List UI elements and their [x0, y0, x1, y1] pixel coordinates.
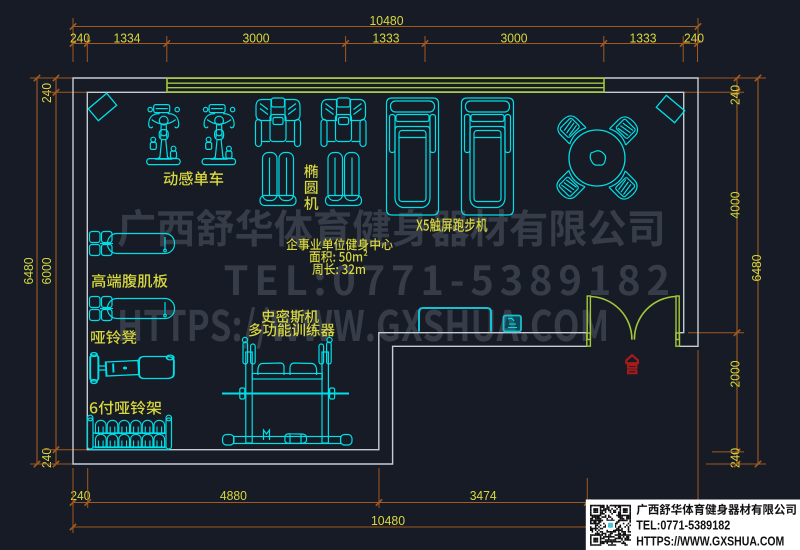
svg-text:1334: 1334: [114, 31, 141, 46]
svg-text:TEL:0771-5389182: TEL:0771-5389182: [636, 518, 730, 533]
svg-text:240: 240: [728, 448, 743, 468]
svg-text:240: 240: [39, 448, 54, 468]
svg-text:4880: 4880: [220, 488, 247, 503]
svg-text:1333: 1333: [373, 31, 400, 46]
svg-text:10480: 10480: [371, 513, 405, 528]
svg-text:240: 240: [39, 83, 54, 103]
svg-text:3474: 3474: [470, 488, 497, 503]
svg-text:240: 240: [684, 31, 704, 46]
svg-text:4000: 4000: [728, 192, 743, 219]
svg-text:240: 240: [70, 31, 90, 46]
svg-text:2000: 2000: [728, 361, 743, 388]
svg-text:240: 240: [728, 85, 743, 105]
svg-text:HTTPS://WWW.GXSHUA.COM: HTTPS://WWW.GXSHUA.COM: [636, 534, 784, 549]
svg-text:10480: 10480: [370, 13, 404, 28]
svg-text:3000: 3000: [501, 31, 528, 46]
svg-text:3000: 3000: [243, 31, 270, 46]
svg-text:6000: 6000: [39, 258, 54, 285]
svg-text:6480: 6480: [21, 258, 36, 285]
svg-text:6480: 6480: [749, 255, 764, 282]
svg-text:1333: 1333: [630, 31, 657, 46]
